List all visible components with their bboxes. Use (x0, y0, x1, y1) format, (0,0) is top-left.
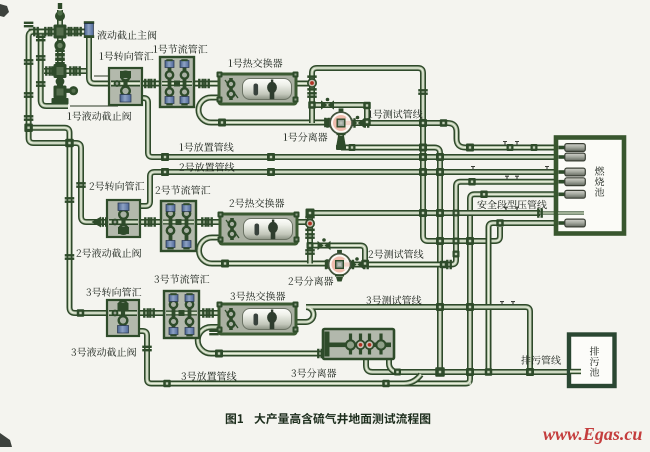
svg-text:www.Egas.cu: www.Egas.cu (543, 424, 642, 444)
